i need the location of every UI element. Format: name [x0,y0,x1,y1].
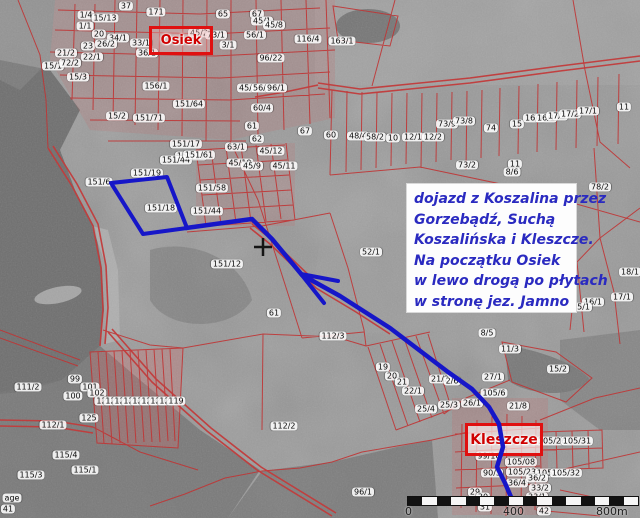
scale-bar-segment [451,497,465,505]
scale-bar-segment [581,497,595,505]
route-note-box: dojazd z Koszalina przez Gorzebądź, Such… [406,183,577,313]
scale-bar-segment [624,497,638,505]
field-highlight-polygon [111,177,187,234]
scale-bar-segment [437,497,451,505]
note-line: w lewo drogą po płytach [414,271,570,292]
scale-bar-segment [523,497,537,505]
scale-bar-segment [595,497,609,505]
note-line: dojazd z Koszalina przez [414,189,570,210]
scale-bar-segment [466,497,480,505]
aerial-cadastral-map: 371/415/13171656745/145/81/12034/12326/2… [0,0,640,518]
scale-label-end: 800m [596,505,628,518]
scale-bar-segment [408,497,422,505]
scale-bar-segment [509,497,523,505]
crosshair-mark [254,238,272,256]
note-line: Gorzebądź, Suchą [414,210,570,231]
route-arrow-icon [301,274,338,303]
scale-bar-segment [566,497,580,505]
scale-bar-segment [609,497,623,505]
note-line: w stronę jez. Jamno [414,292,570,313]
note-line: Na początku Osiek [414,251,570,272]
scale-bar-segment [422,497,436,505]
scale-label-mid: 400 [503,505,524,518]
note-line: Koszalińska i Kleszcze. [414,230,570,251]
scale-bar-segment [552,497,566,505]
scale-label-start: 0 [405,505,412,518]
scale-bar-segment [537,497,551,505]
scale-bar-segment [480,497,494,505]
scale-bar-segment [494,497,508,505]
